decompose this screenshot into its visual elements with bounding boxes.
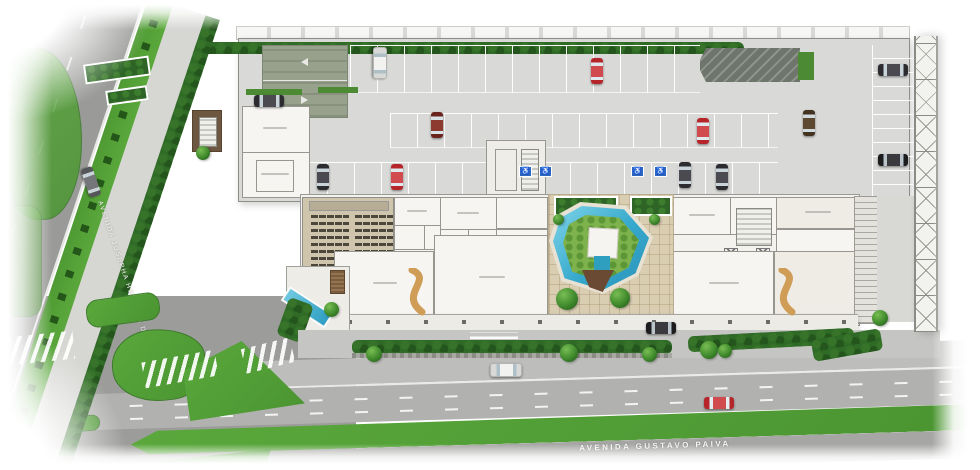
fountain-water-channel xyxy=(594,256,610,272)
shrub xyxy=(366,346,382,362)
entry-verge xyxy=(318,87,358,93)
green-verge-west-low xyxy=(0,205,42,317)
garage-ramp-east xyxy=(700,48,800,82)
colonnade-column xyxy=(462,320,466,324)
shrub xyxy=(196,146,210,160)
room xyxy=(440,197,498,231)
fountain-center-platform xyxy=(587,227,619,259)
east-parking-strip xyxy=(854,196,878,324)
shrub xyxy=(872,310,888,326)
room-label-placeholder xyxy=(479,276,505,278)
car-parked xyxy=(716,164,728,190)
shrub xyxy=(700,341,718,359)
colonnade-column xyxy=(842,320,846,324)
plaza-planter xyxy=(630,196,672,216)
room-label-placeholder xyxy=(805,211,831,213)
ramp-arrow xyxy=(301,58,308,66)
east-structural-wall xyxy=(914,36,938,332)
south-hall xyxy=(434,235,548,319)
ramp-verge xyxy=(798,52,814,80)
car-inner-drive xyxy=(646,322,676,334)
car-avenue xyxy=(704,397,734,409)
shrub xyxy=(560,344,578,362)
room xyxy=(394,197,442,227)
plaza-shrub xyxy=(553,214,564,225)
garden-stair-block xyxy=(192,110,222,152)
shrub xyxy=(642,347,657,362)
shrub xyxy=(718,344,732,358)
ramp-divider xyxy=(263,80,347,81)
colonnade-column xyxy=(804,320,808,324)
plaza-shrub xyxy=(556,288,578,310)
car-parked xyxy=(373,47,387,79)
car-parked xyxy=(317,164,329,190)
car-parked xyxy=(697,118,709,144)
room-label-placeholder xyxy=(407,210,427,212)
garage-room-b-inner xyxy=(256,160,294,192)
colonnade-column xyxy=(538,320,542,324)
colonnade-column xyxy=(386,320,390,324)
parking-stall-row-2 xyxy=(390,113,778,148)
plaza-shrub xyxy=(649,214,660,225)
car-parked xyxy=(803,110,815,136)
room-label-placeholder xyxy=(373,282,397,284)
gabion-wall xyxy=(352,353,672,358)
south-hall xyxy=(672,251,774,319)
wavy-garden-path xyxy=(404,268,444,316)
room xyxy=(776,197,860,229)
accessible-parking-icon: ♿ xyxy=(539,166,552,177)
car-parked xyxy=(431,112,443,138)
room-label-placeholder xyxy=(457,212,479,214)
garage-core-lobby xyxy=(486,140,546,200)
car-parked xyxy=(591,58,603,84)
car-parked xyxy=(679,162,691,188)
plaza-shrub xyxy=(610,288,630,308)
room-label-placeholder xyxy=(709,282,739,284)
east-walkway xyxy=(877,196,915,322)
colonnade-column xyxy=(728,320,732,324)
accessible-parking-icon: ♿ xyxy=(631,166,644,177)
wavy-garden-path xyxy=(774,268,814,316)
core-elevator xyxy=(495,149,517,191)
accessible-parking-icon: ♿ xyxy=(519,166,532,177)
south-hedge xyxy=(352,340,672,354)
stair-core xyxy=(736,208,772,246)
room xyxy=(672,197,732,235)
colonnade-column xyxy=(500,320,504,324)
garden-stairs xyxy=(199,117,217,147)
colonnade-column xyxy=(576,320,580,324)
colonnade-column xyxy=(690,320,694,324)
parking-stall-row-1 xyxy=(350,45,700,93)
car-parked xyxy=(878,154,908,166)
car-parked xyxy=(878,64,908,76)
accessible-parking-icon: ♿ xyxy=(654,166,667,177)
colonnade-column xyxy=(766,320,770,324)
site-plan-canvas: AVENIDA GUSTAVO PAIVA ♿ ♿ ♿ ♿ AVENIDA J xyxy=(0,0,980,470)
room-label-placeholder xyxy=(689,214,715,216)
colonnade-column xyxy=(424,320,428,324)
car-entry-drive xyxy=(254,95,284,107)
room xyxy=(496,197,548,229)
colonnade-column xyxy=(614,320,618,324)
car-dropoff xyxy=(490,363,522,377)
room-label-placeholder xyxy=(263,127,287,129)
ramp-arrow xyxy=(301,96,308,104)
car-parked xyxy=(391,164,403,190)
auditorium-stage xyxy=(309,201,389,211)
room xyxy=(394,225,426,251)
pergola xyxy=(330,270,345,294)
shrub xyxy=(324,302,339,317)
